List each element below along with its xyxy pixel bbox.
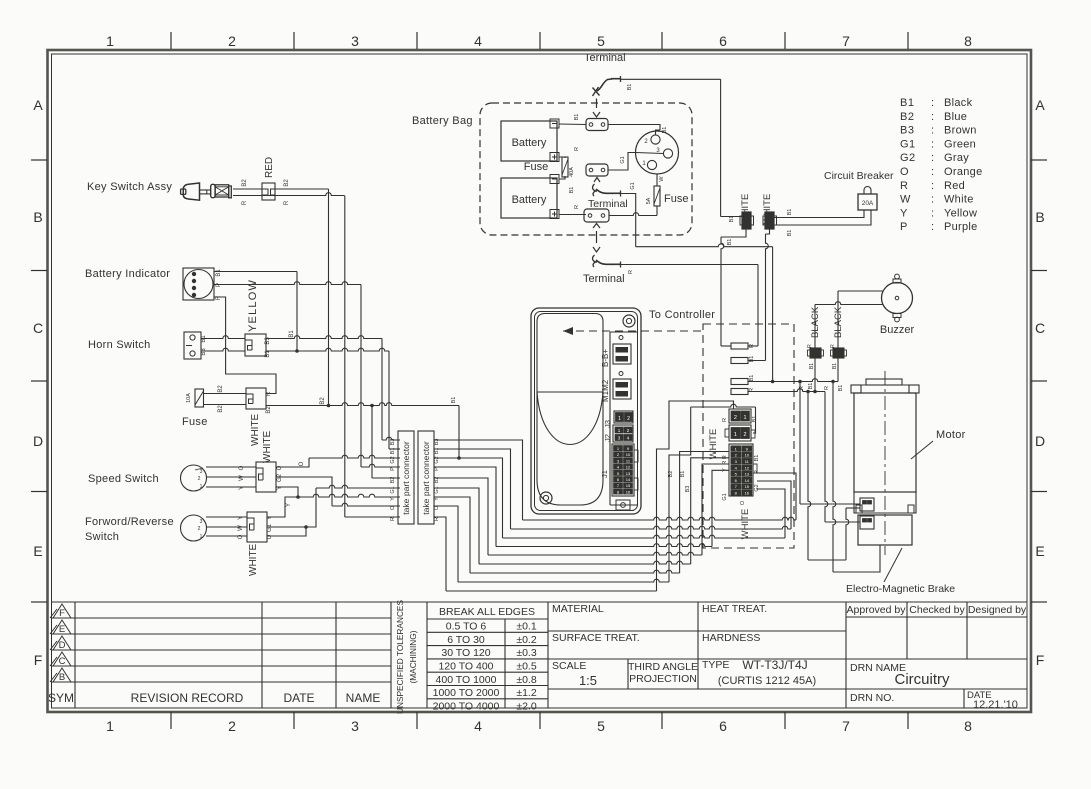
svg-text:R: R: [628, 270, 634, 274]
svg-text:B1: B1: [808, 383, 814, 390]
svg-text:2: 2: [228, 33, 236, 49]
svg-text:F: F: [1036, 652, 1045, 668]
svg-text:RED: RED: [264, 157, 275, 178]
svg-text:R: R: [749, 344, 755, 348]
svg-text:B: B: [33, 209, 42, 225]
svg-text:B1: B1: [680, 471, 686, 478]
svg-text:Electro-Magnetic Brake: Electro-Magnetic Brake: [846, 583, 955, 595]
svg-text:Y: Y: [900, 207, 908, 219]
svg-text:16: 16: [745, 491, 750, 496]
svg-text:G2: G2: [390, 456, 396, 463]
svg-text:6 TO 30: 6 TO 30: [447, 634, 485, 646]
svg-text:6: 6: [719, 33, 727, 49]
svg-text:B2: B2: [320, 397, 326, 405]
svg-text:UNSPECIFIED TOLERANCES: UNSPECIFIED TOLERANCES: [395, 600, 405, 714]
svg-text:O: O: [277, 465, 283, 470]
svg-text:Terminal: Terminal: [584, 52, 626, 64]
svg-text:B2: B2: [900, 111, 914, 123]
svg-text:B1: B1: [662, 127, 668, 134]
svg-text:BREAK ALL EDGES: BREAK ALL EDGES: [439, 606, 535, 618]
svg-text:B1: B1: [838, 385, 844, 392]
svg-text::: :: [931, 97, 934, 109]
svg-text:HARDNESS: HARDNESS: [702, 632, 760, 644]
svg-text:Circuitry: Circuitry: [895, 671, 950, 688]
svg-text:O: O: [267, 534, 273, 539]
svg-text:Fuse: Fuse: [524, 161, 548, 173]
svg-text:Y: Y: [286, 503, 292, 507]
svg-text:WHITE: WHITE: [708, 429, 719, 460]
svg-text:O: O: [900, 166, 909, 178]
svg-text:WHITE: WHITE: [740, 509, 751, 540]
svg-text:Y: Y: [722, 468, 728, 472]
svg-text:P: P: [390, 467, 396, 471]
svg-text:D: D: [59, 640, 66, 651]
svg-text:Purple: Purple: [944, 221, 978, 233]
svg-text:WT-T3J/T4J: WT-T3J/T4J: [742, 658, 807, 672]
svg-text:M1M2: M1M2: [601, 379, 610, 402]
svg-text:take part connector: take part connector: [421, 441, 431, 515]
svg-text:Fuse: Fuse: [182, 416, 208, 428]
svg-text:Brown: Brown: [944, 125, 977, 137]
svg-text:2: 2: [228, 718, 236, 734]
svg-text:Battery: Battery: [512, 137, 547, 149]
svg-text:To Controller: To Controller: [649, 309, 715, 321]
svg-text:4: 4: [474, 33, 482, 49]
svg-text:WHITE: WHITE: [248, 543, 259, 576]
svg-text:WHITE: WHITE: [262, 430, 273, 463]
svg-text:R: R: [434, 517, 440, 521]
svg-text:R: R: [722, 418, 728, 422]
svg-text:1: 1: [743, 415, 746, 421]
svg-text:10: 10: [745, 453, 750, 458]
svg-text:C: C: [33, 320, 43, 336]
svg-text:B: B: [1035, 209, 1044, 225]
svg-text:Circuit Breaker: Circuit Breaker: [824, 170, 894, 182]
svg-text:1000 TO 2000: 1000 TO 2000: [433, 687, 500, 699]
svg-text:Key Switch Assy: Key Switch Assy: [87, 181, 172, 193]
svg-text::: :: [931, 194, 934, 206]
svg-text:Orange: Orange: [944, 166, 983, 178]
svg-text:MATERIAL: MATERIAL: [552, 603, 604, 615]
svg-text:±0.3: ±0.3: [516, 647, 537, 659]
svg-text:15: 15: [626, 483, 631, 488]
svg-text:O: O: [238, 534, 244, 539]
svg-text:2: 2: [198, 476, 201, 482]
svg-text::: :: [931, 166, 934, 178]
svg-text:G1: G1: [390, 486, 396, 493]
svg-text:White: White: [944, 194, 974, 206]
svg-text:3: 3: [200, 469, 203, 475]
svg-text:P: P: [754, 470, 760, 474]
svg-text:1: 1: [200, 534, 203, 540]
svg-text:20A: 20A: [862, 200, 874, 207]
svg-text:1: 1: [106, 718, 114, 734]
svg-text:R: R: [824, 386, 830, 390]
svg-text:B1: B1: [900, 97, 914, 109]
svg-text:B3: B3: [265, 337, 271, 345]
svg-text:HEAT TREAT.: HEAT TREAT.: [702, 603, 767, 615]
svg-text:R: R: [807, 344, 813, 348]
svg-text:14: 14: [626, 477, 631, 482]
svg-text:R: R: [900, 180, 908, 192]
svg-text:7: 7: [842, 718, 850, 734]
svg-text:3: 3: [351, 718, 359, 734]
svg-text:B: B: [59, 672, 65, 683]
svg-text:B2: B2: [284, 179, 290, 187]
svg-text:WHITE: WHITE: [250, 413, 261, 446]
svg-text:E: E: [59, 624, 65, 635]
svg-text:B2: B2: [668, 471, 674, 478]
svg-text:DATE: DATE: [283, 691, 314, 705]
svg-text:7: 7: [842, 33, 850, 49]
svg-text:B1: B1: [289, 330, 295, 338]
svg-text:O: O: [299, 461, 305, 466]
svg-text:R: R: [390, 517, 396, 521]
svg-text:2: 2: [627, 416, 630, 422]
svg-text:Switch: Switch: [85, 531, 119, 543]
svg-text:Y: Y: [390, 497, 396, 501]
svg-text:B2: B2: [266, 406, 272, 414]
svg-text:B1: B1: [216, 269, 222, 277]
svg-text:B1: B1: [749, 356, 755, 363]
svg-text:5: 5: [597, 718, 605, 734]
svg-text::: :: [931, 221, 934, 233]
svg-text:Blue: Blue: [944, 111, 967, 123]
svg-text:Gray: Gray: [944, 152, 969, 164]
svg-text:±0.8: ±0.8: [516, 674, 537, 686]
svg-text:6: 6: [719, 718, 727, 734]
svg-text:Motor: Motor: [936, 429, 966, 441]
svg-text:B1: B1: [569, 187, 575, 194]
svg-text:120 TO 400: 120 TO 400: [438, 661, 493, 673]
svg-text:B3: B3: [685, 486, 691, 493]
svg-text:4: 4: [474, 718, 482, 734]
svg-text:1: 1: [618, 416, 621, 422]
svg-text:NAME: NAME: [346, 691, 381, 705]
svg-text:14: 14: [745, 478, 750, 483]
svg-text:G1: G1: [722, 493, 728, 500]
svg-text:G2: G2: [277, 473, 283, 482]
svg-text:G1: G1: [620, 156, 626, 163]
svg-text:±0.1: ±0.1: [516, 621, 537, 633]
svg-text:Designed by: Designed by: [968, 604, 1027, 616]
svg-text:Forword/Reverse: Forword/Reverse: [85, 516, 174, 528]
svg-text:DRN NO.: DRN NO.: [850, 692, 894, 704]
svg-text:O: O: [239, 465, 245, 470]
svg-text:A: A: [1035, 97, 1045, 113]
svg-text:WHITE: WHITE: [762, 194, 773, 225]
svg-text:J1: J1: [600, 470, 609, 478]
svg-text:Battery Indicator: Battery Indicator: [85, 268, 170, 280]
svg-text:B1: B1: [832, 363, 838, 369]
svg-text:Speed Switch: Speed Switch: [88, 473, 159, 485]
svg-text:Black: Black: [944, 97, 973, 109]
svg-text:Terminal: Terminal: [583, 273, 625, 285]
svg-text::: :: [931, 111, 934, 123]
svg-text::: :: [931, 138, 934, 150]
svg-text:E: E: [1035, 543, 1044, 559]
svg-text:SURFACE TREAT.: SURFACE TREAT.: [552, 632, 640, 644]
svg-text:Yellow: Yellow: [944, 207, 977, 219]
svg-text:2: 2: [743, 432, 746, 438]
svg-text:R: R: [574, 147, 580, 151]
svg-text:B1: B1: [574, 114, 580, 121]
svg-text:B1: B1: [787, 230, 793, 237]
svg-text:TYPE: TYPE: [702, 659, 729, 671]
svg-text:B1: B1: [451, 397, 457, 404]
svg-text:J2: J2: [603, 434, 612, 442]
svg-text:G1: G1: [267, 523, 273, 532]
svg-text:W: W: [239, 475, 245, 481]
svg-text:WHITE: WHITE: [740, 194, 751, 225]
svg-text:B2: B2: [218, 385, 224, 393]
svg-text:1: 1: [200, 484, 203, 490]
svg-text:YELLOW: YELLOW: [247, 279, 259, 332]
svg-text:12: 12: [626, 465, 631, 470]
svg-text:10: 10: [626, 452, 631, 457]
svg-text:O: O: [390, 505, 396, 510]
svg-text::: :: [931, 207, 934, 219]
svg-text:(CURTIS 1212 45A): (CURTIS 1212 45A): [718, 675, 816, 687]
svg-text:R: R: [574, 205, 580, 209]
svg-text:12: 12: [745, 465, 750, 470]
svg-text:Battery: Battery: [512, 194, 547, 206]
svg-text:D: D: [1035, 433, 1045, 449]
svg-text:B1: B1: [752, 416, 758, 423]
svg-text:Checked by: Checked by: [909, 604, 965, 616]
svg-text::: :: [931, 152, 934, 164]
svg-text:B1: B1: [390, 448, 396, 455]
svg-text:B1: B1: [749, 375, 755, 382]
svg-text:40A: 40A: [569, 167, 575, 177]
svg-text:15: 15: [745, 484, 750, 489]
svg-text:3: 3: [351, 33, 359, 49]
svg-text:B3: B3: [390, 439, 396, 446]
svg-text:W: W: [238, 525, 244, 531]
svg-text:±0.5: ±0.5: [516, 661, 537, 673]
svg-text:5: 5: [597, 33, 605, 49]
svg-text:B1: B1: [627, 84, 633, 91]
svg-text:±0.2: ±0.2: [516, 634, 537, 646]
svg-text:1:5: 1:5: [579, 673, 597, 688]
svg-text:B3: B3: [900, 125, 914, 137]
svg-text:3: 3: [200, 519, 203, 525]
svg-text:2: 2: [734, 415, 737, 421]
svg-text:Fuse: Fuse: [664, 193, 688, 205]
svg-text:0.5 TO 6: 0.5 TO 6: [446, 621, 487, 633]
svg-text:10A: 10A: [186, 393, 192, 403]
svg-text:D: D: [33, 433, 43, 449]
svg-text:R: R: [216, 295, 222, 300]
svg-text:2: 2: [198, 526, 201, 532]
svg-text:SYM: SYM: [48, 691, 74, 705]
svg-text:R: R: [266, 391, 272, 396]
svg-text:±2.0: ±2.0: [516, 700, 537, 712]
svg-text:(MACHINING): (MACHINING): [408, 630, 418, 683]
svg-text:8: 8: [964, 33, 972, 49]
svg-text:REVISION RECORD: REVISION RECORD: [131, 691, 244, 705]
svg-text:400 TO 1000: 400 TO 1000: [436, 674, 497, 686]
svg-text::: :: [931, 180, 934, 192]
svg-text:G2: G2: [434, 456, 440, 463]
svg-text:G2: G2: [754, 484, 760, 491]
svg-text:B1: B1: [729, 216, 735, 223]
svg-text:13: 13: [745, 472, 750, 477]
svg-text:1: 1: [106, 33, 114, 49]
svg-text:O: O: [740, 500, 746, 505]
svg-text:13: 13: [626, 471, 631, 476]
svg-text:R R: R R: [722, 455, 728, 465]
svg-text:F: F: [34, 652, 43, 668]
svg-text:R: R: [830, 344, 836, 348]
svg-text:Red: Red: [944, 180, 965, 192]
svg-text:J3: J3: [603, 420, 612, 428]
svg-text:Horn Switch: Horn Switch: [88, 339, 151, 351]
svg-text:Battery Bag: Battery Bag: [412, 115, 473, 127]
svg-text:R: R: [242, 200, 248, 205]
svg-text:Approved by: Approved by: [847, 604, 907, 616]
svg-text:PROJECTION: PROJECTION: [629, 673, 697, 685]
svg-text:8: 8: [964, 718, 972, 734]
svg-text:G1: G1: [434, 486, 440, 493]
svg-text:W: W: [659, 176, 665, 182]
svg-text:B1: B1: [727, 239, 733, 246]
svg-text:B1: B1: [754, 455, 760, 462]
svg-text:Buzzer: Buzzer: [880, 324, 915, 336]
svg-text:G2: G2: [900, 152, 916, 164]
svg-text:Y: Y: [238, 516, 244, 520]
svg-text:THIRD ANGLE: THIRD ANGLE: [628, 661, 698, 673]
svg-text:A: A: [33, 97, 43, 113]
svg-text:R: R: [284, 200, 290, 205]
svg-text:E: E: [33, 543, 42, 559]
svg-text:take part connector: take part connector: [401, 441, 411, 515]
svg-text:SCALE: SCALE: [552, 660, 586, 672]
svg-text:30 TO 120: 30 TO 120: [441, 647, 490, 659]
svg-text:W: W: [900, 194, 911, 206]
svg-text:C: C: [59, 656, 66, 667]
svg-text:B2: B2: [242, 179, 248, 187]
svg-text:B2: B2: [390, 477, 396, 484]
svg-text:12.21.'10: 12.21.'10: [973, 699, 1018, 711]
svg-text:B3: B3: [201, 348, 207, 356]
svg-text:B1: B1: [787, 209, 793, 216]
svg-text:C: C: [1035, 320, 1045, 336]
svg-text:G1: G1: [900, 138, 916, 150]
svg-text:±1.2: ±1.2: [516, 687, 537, 699]
svg-text:1: 1: [734, 432, 737, 438]
svg-text:P: P: [900, 221, 908, 233]
svg-text:Y: Y: [239, 486, 245, 490]
svg-text:5A: 5A: [646, 197, 652, 204]
svg-text:F: F: [59, 608, 65, 619]
svg-text:Terminal: Terminal: [588, 198, 628, 210]
svg-text:Green: Green: [944, 138, 976, 150]
svg-text:2000 TO 4000: 2000 TO 4000: [433, 700, 500, 712]
svg-text:B-B+: B-B+: [601, 349, 610, 367]
svg-text::: :: [931, 125, 934, 137]
svg-text:R: R: [799, 386, 805, 390]
svg-text:B1: B1: [809, 363, 815, 369]
svg-text:16: 16: [626, 489, 631, 494]
svg-text:G1: G1: [630, 182, 636, 189]
svg-text:B2: B2: [218, 405, 224, 413]
